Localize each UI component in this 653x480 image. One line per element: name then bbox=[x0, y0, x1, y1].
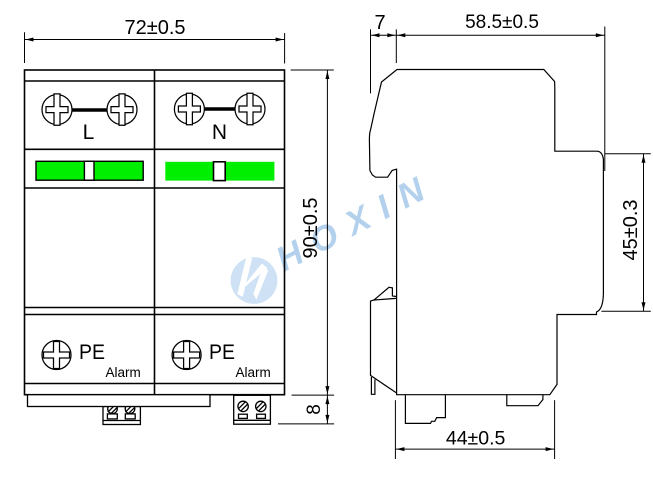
svg-text:45±0.3: 45±0.3 bbox=[620, 199, 642, 260]
svg-text:PE: PE bbox=[209, 341, 235, 364]
svg-text:L: L bbox=[83, 121, 95, 144]
svg-text:8: 8 bbox=[304, 404, 325, 415]
svg-text:58.5±0.5: 58.5±0.5 bbox=[465, 12, 539, 33]
svg-text:Alarm: Alarm bbox=[236, 365, 271, 380]
svg-text:Alarm: Alarm bbox=[106, 365, 141, 380]
svg-text:44±0.5: 44±0.5 bbox=[446, 427, 506, 449]
svg-text:7: 7 bbox=[374, 12, 385, 34]
svg-text:N: N bbox=[212, 121, 227, 144]
svg-text:PE: PE bbox=[79, 341, 105, 364]
svg-text:90±0.5: 90±0.5 bbox=[300, 197, 322, 258]
svg-text:72±0.5: 72±0.5 bbox=[124, 17, 185, 39]
